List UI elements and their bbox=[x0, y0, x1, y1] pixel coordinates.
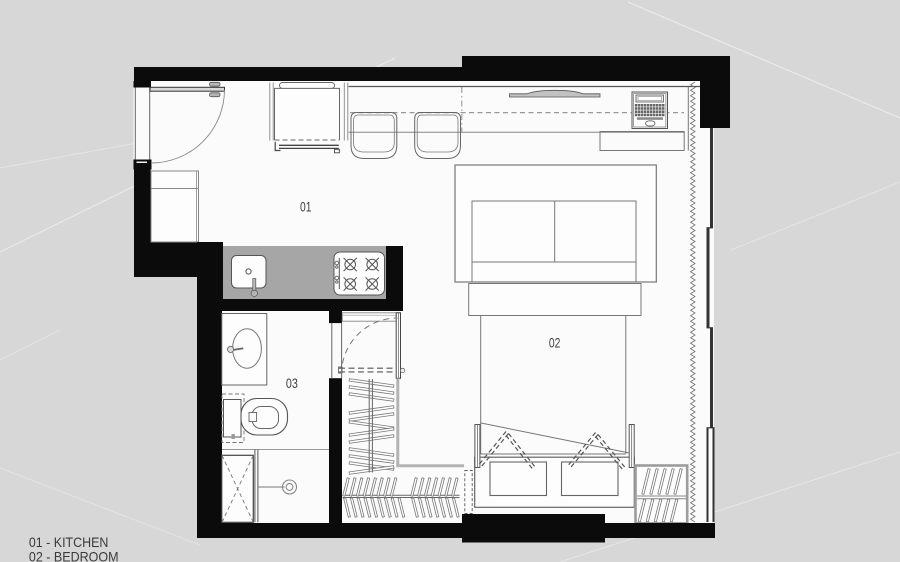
svg-text:02: 02 bbox=[549, 335, 561, 351]
svg-text:02 - BEDROOM: 02 - BEDROOM bbox=[29, 548, 119, 562]
svg-text:03: 03 bbox=[286, 375, 298, 391]
svg-text:01: 01 bbox=[300, 199, 312, 215]
